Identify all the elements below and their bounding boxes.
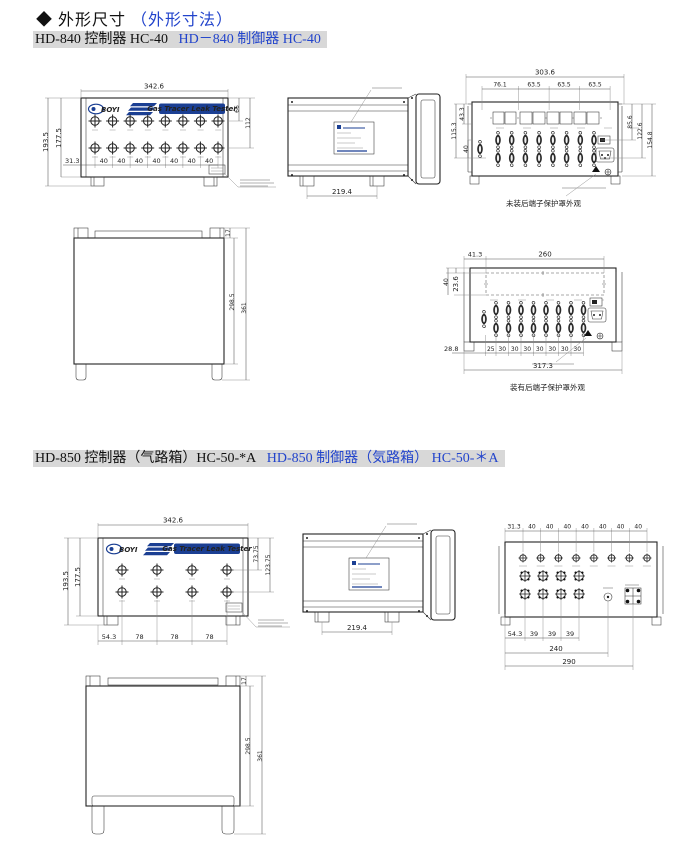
dim-label: 63.5 <box>557 82 571 89</box>
dim-label: 193.5 <box>62 571 70 591</box>
feet <box>92 806 234 834</box>
dim-label: 31.3 <box>65 157 79 165</box>
hd840-front-view: BOYI Gas Tracer Leak Tester 342.6 193.5 <box>33 76 275 220</box>
hd840-rear-view: 303.6 76.1 63.5 63.5 63.5 115.3 43.3 40 … <box>446 60 700 212</box>
dim-label: 73.75 <box>253 545 260 562</box>
dim-label: 40 <box>546 524 554 531</box>
label-annotation <box>242 612 290 627</box>
hd850-heading-cn: HD-850 控制器（气路箱）HC-50-*A <box>35 451 256 466</box>
brand-logo-text: BOYI <box>101 106 120 114</box>
dim-label: 30 <box>536 346 544 353</box>
dim-label: 219.4 <box>332 188 353 196</box>
rear-caption: 未装后端子保护罩外观 <box>506 198 581 208</box>
hd840-rear-covered-view: 41.3 260 40 23.6 28.8 25 30 30 30 30 30 … <box>438 238 700 402</box>
dim-label: 40 <box>617 524 625 531</box>
dim-label: 40 <box>135 157 143 165</box>
feet <box>315 612 399 622</box>
dim-label: 39 <box>566 630 574 638</box>
device-body <box>288 98 408 176</box>
dim-label: 85.6 <box>627 115 634 129</box>
dim-label: 78 <box>205 633 213 641</box>
dim-label: 40 <box>581 524 589 531</box>
dim-label: 40 <box>443 278 450 286</box>
dim-label: 40 <box>152 157 160 165</box>
dim-label: 290 <box>562 658 575 666</box>
dim-label: 317.3 <box>533 362 553 370</box>
dim-label: 41.3 <box>468 251 482 259</box>
dim-label: 219.4 <box>347 624 368 632</box>
dim-label: 177.5 <box>55 128 63 148</box>
dim-label: 30 <box>548 346 556 353</box>
dim-label: 112 <box>245 117 252 129</box>
feet <box>76 364 222 380</box>
dim-label: 30 <box>561 346 569 353</box>
dim-label: 78 <box>170 633 178 641</box>
feet <box>104 616 240 625</box>
dim-label: 31.3 <box>507 524 521 531</box>
brand-tagline: Gas Tracer Leak Tester <box>162 545 252 553</box>
dim-label: 298.5 <box>245 737 252 754</box>
dim-label: 63.5 <box>527 82 541 89</box>
dim-label: 154.8 <box>647 131 654 148</box>
diamond-bullet-icon: ◆ <box>36 12 53 29</box>
page-title-cn: 外形尺寸 <box>58 12 126 29</box>
device-body <box>470 268 616 342</box>
device-body <box>303 534 423 612</box>
dim-label: 361 <box>257 750 264 762</box>
dim-label: 66 <box>234 105 241 113</box>
dim-label: 40 <box>187 157 195 165</box>
hd840-heading: HD-840 控制器 HC-40 HD－840 制御器 HC-40 <box>33 30 327 50</box>
dim-label: 40 <box>563 524 571 531</box>
dim-label: 54.3 <box>508 630 522 638</box>
dim-label: 54.3 <box>102 633 116 641</box>
hd850-rear-view: 31.3 40 40 40 40 40 40 40 54.3 39 39 39 … <box>491 506 699 684</box>
page-title-jp: （外形寸法） <box>131 12 233 29</box>
dim-label: 40 <box>463 145 470 153</box>
hd840-bottom-view: 17 298.5 361 <box>58 216 290 408</box>
dim-label: 342.6 <box>144 83 165 91</box>
hd850-side-view: 219.4 <box>291 508 483 648</box>
dim-label: 122.6 <box>637 122 644 139</box>
dim-label: 17 <box>225 229 232 237</box>
dim-label: 115.3 <box>451 122 458 139</box>
hd850-bottom-view: 17 298.5 361 <box>66 666 294 862</box>
dim-label: 342.6 <box>163 517 184 525</box>
hd850-front-view: BOYI Gas Tracer Leak Tester 342.6 193.5 … <box>28 503 304 665</box>
dim-label: 30 <box>523 346 531 353</box>
page-title: ◆ 外形尺寸 （外形寸法） <box>36 6 233 30</box>
dim-label: 40 <box>634 524 642 531</box>
dim-label: 78 <box>135 633 143 641</box>
device-body <box>74 238 224 364</box>
dim-label: 240 <box>549 645 562 653</box>
dim-label: 39 <box>548 630 556 638</box>
dim-label: 40 <box>599 524 607 531</box>
feet <box>91 177 217 186</box>
dim-label: 28.8 <box>444 345 458 353</box>
dim-label: 40 <box>100 157 108 165</box>
dim-label: 123.75 <box>265 554 272 575</box>
dim-label: 260 <box>538 251 551 259</box>
hd850-heading: HD-850 控制器（气路箱）HC-50-*A HD-850 制御器（気路箱） … <box>33 449 505 469</box>
dim-label: 25 <box>487 346 495 353</box>
dim-label: 63.5 <box>588 82 602 89</box>
dim-label: 39 <box>530 630 538 638</box>
label-annotation <box>225 174 276 187</box>
dim-label: 23.6 <box>452 276 460 292</box>
dim-label: 40 <box>205 157 213 165</box>
feet <box>300 176 384 186</box>
hd840-side-view: 219.4 <box>276 78 468 210</box>
dim-label: 303.6 <box>535 69 556 77</box>
dim-label: 30 <box>511 346 519 353</box>
hd840-heading-cn: HD-840 控制器 HC-40 <box>35 32 168 47</box>
dim-label: 76.1 <box>493 82 507 89</box>
dim-label: 40 <box>170 157 178 165</box>
dim-label: 17 <box>241 677 248 685</box>
ground-mark-icon <box>605 169 611 175</box>
dim-label: 193.5 <box>42 132 50 152</box>
dim-label: 43.3 <box>459 107 466 121</box>
rear-covered-caption: 装有后端子保护罩外观 <box>510 382 585 392</box>
side-handle <box>423 530 455 620</box>
side-handle <box>408 94 440 184</box>
dimension-drawing-page: ◆ 外形尺寸 （外形寸法） HD-840 控制器 HC-40 HD－840 制御… <box>0 0 700 863</box>
ground-mark-icon <box>597 333 603 339</box>
dim-label: 298.5 <box>229 293 236 310</box>
dim-label: 40 <box>528 524 536 531</box>
dim-label: 40 <box>117 157 125 165</box>
device-body <box>86 686 240 806</box>
hd840-heading-jp: HD－840 制御器 HC-40 <box>179 32 321 47</box>
brand-logo-text: BOYI <box>119 546 138 554</box>
dim-label: 361 <box>241 302 248 314</box>
dim-label: 30 <box>498 346 506 353</box>
brand-tagline: Gas Tracer Leak Tester <box>147 105 237 113</box>
hd850-heading-jp: HD-850 制御器（気路箱） HC-50-＊A <box>267 451 499 466</box>
dim-label: 177.5 <box>74 567 82 587</box>
